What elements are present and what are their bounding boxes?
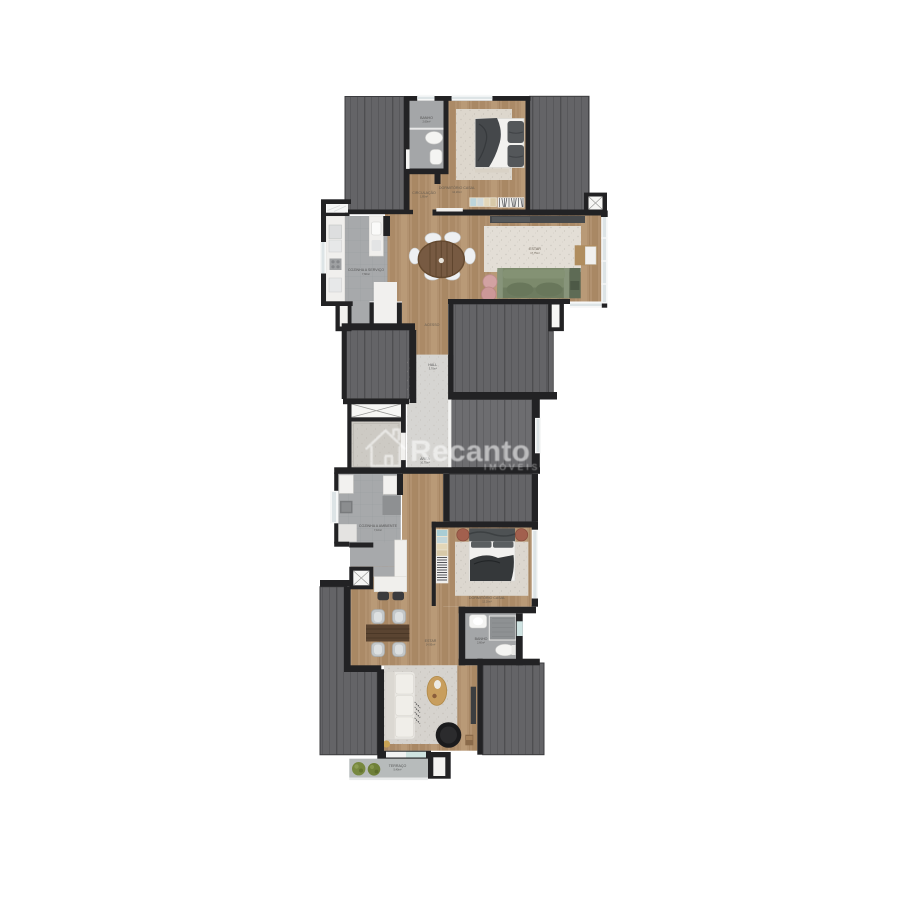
svg-text:ESTAR: ESTAR — [425, 639, 437, 643]
svg-text:5,40m²: 5,40m² — [393, 768, 401, 772]
svg-text:ESTAR: ESTAR — [529, 247, 541, 251]
svg-text:2,60m²: 2,60m² — [477, 640, 485, 644]
svg-text:7,10m²: 7,10m² — [374, 528, 382, 532]
svg-text:DORMITÓRIO CASAL: DORMITÓRIO CASAL — [439, 185, 475, 190]
svg-text:TERRAÇO: TERRAÇO — [389, 764, 407, 768]
svg-text:12,20m²: 12,20m² — [452, 190, 462, 194]
svg-text:12,20m²: 12,20m² — [482, 600, 492, 604]
svg-text:14,95m²: 14,95m² — [426, 643, 436, 647]
svg-text:CIRCULAÇÃO: CIRCULAÇÃO — [412, 190, 436, 195]
svg-text:COZINHA A AMBIENTE: COZINHA A AMBIENTE — [359, 524, 398, 528]
svg-text:3,70m²: 3,70m² — [429, 367, 437, 371]
svg-text:DORMITÓRIO CASAL: DORMITÓRIO CASAL — [469, 595, 505, 600]
svg-text:COZINHA A SERVIÇO: COZINHA A SERVIÇO — [348, 268, 384, 272]
svg-text:BANHO: BANHO — [420, 116, 433, 120]
svg-text:HALL: HALL — [428, 363, 437, 367]
svg-text:7,60m²: 7,60m² — [362, 272, 370, 276]
svg-text:BANHO: BANHO — [475, 637, 488, 641]
svg-text:2,60m²: 2,60m² — [422, 120, 430, 124]
svg-text:17,75m²: 17,75m² — [530, 251, 540, 255]
svg-text:IMÓVEIS: IMÓVEIS — [484, 462, 540, 472]
svg-text:1,85m²: 1,85m² — [420, 195, 428, 199]
svg-text:ACESSO: ACESSO — [425, 323, 440, 327]
